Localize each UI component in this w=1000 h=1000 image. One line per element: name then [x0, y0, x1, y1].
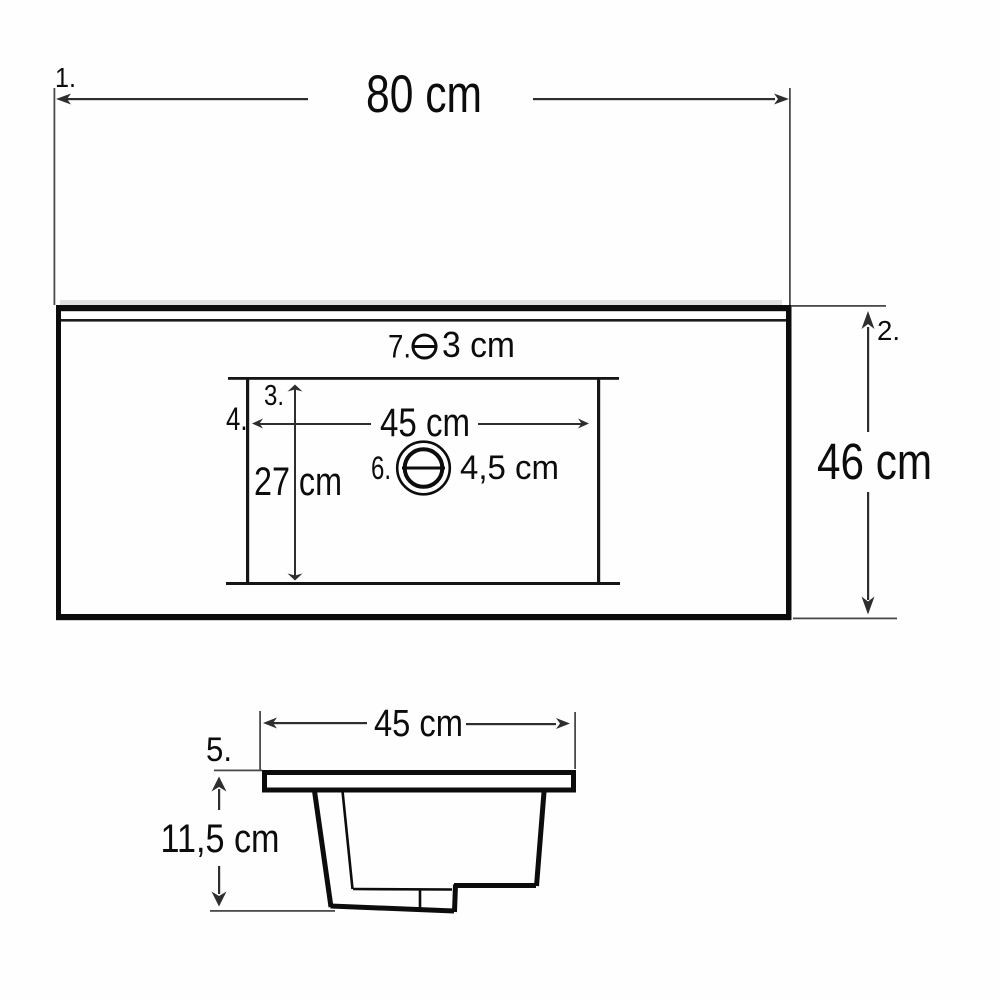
svg-text:11,5 cm: 11,5 cm [161, 817, 280, 861]
svg-text:4.: 4. [226, 401, 248, 437]
svg-text:6.: 6. [371, 450, 391, 486]
svg-text:3 cm: 3 cm [442, 324, 515, 365]
svg-text:46 cm: 46 cm [817, 433, 932, 490]
svg-text:2.: 2. [877, 315, 900, 346]
svg-text:45 cm: 45 cm [374, 703, 463, 745]
svg-text:4,5 cm: 4,5 cm [460, 449, 559, 487]
svg-text:3.: 3. [264, 380, 284, 412]
svg-text:80 cm: 80 cm [366, 65, 482, 124]
svg-text:1.: 1. [55, 62, 76, 93]
svg-text:7.: 7. [388, 329, 411, 365]
svg-text:5.: 5. [206, 731, 232, 769]
svg-text:27 cm: 27 cm [254, 460, 342, 504]
svg-text:45 cm: 45 cm [380, 401, 470, 445]
